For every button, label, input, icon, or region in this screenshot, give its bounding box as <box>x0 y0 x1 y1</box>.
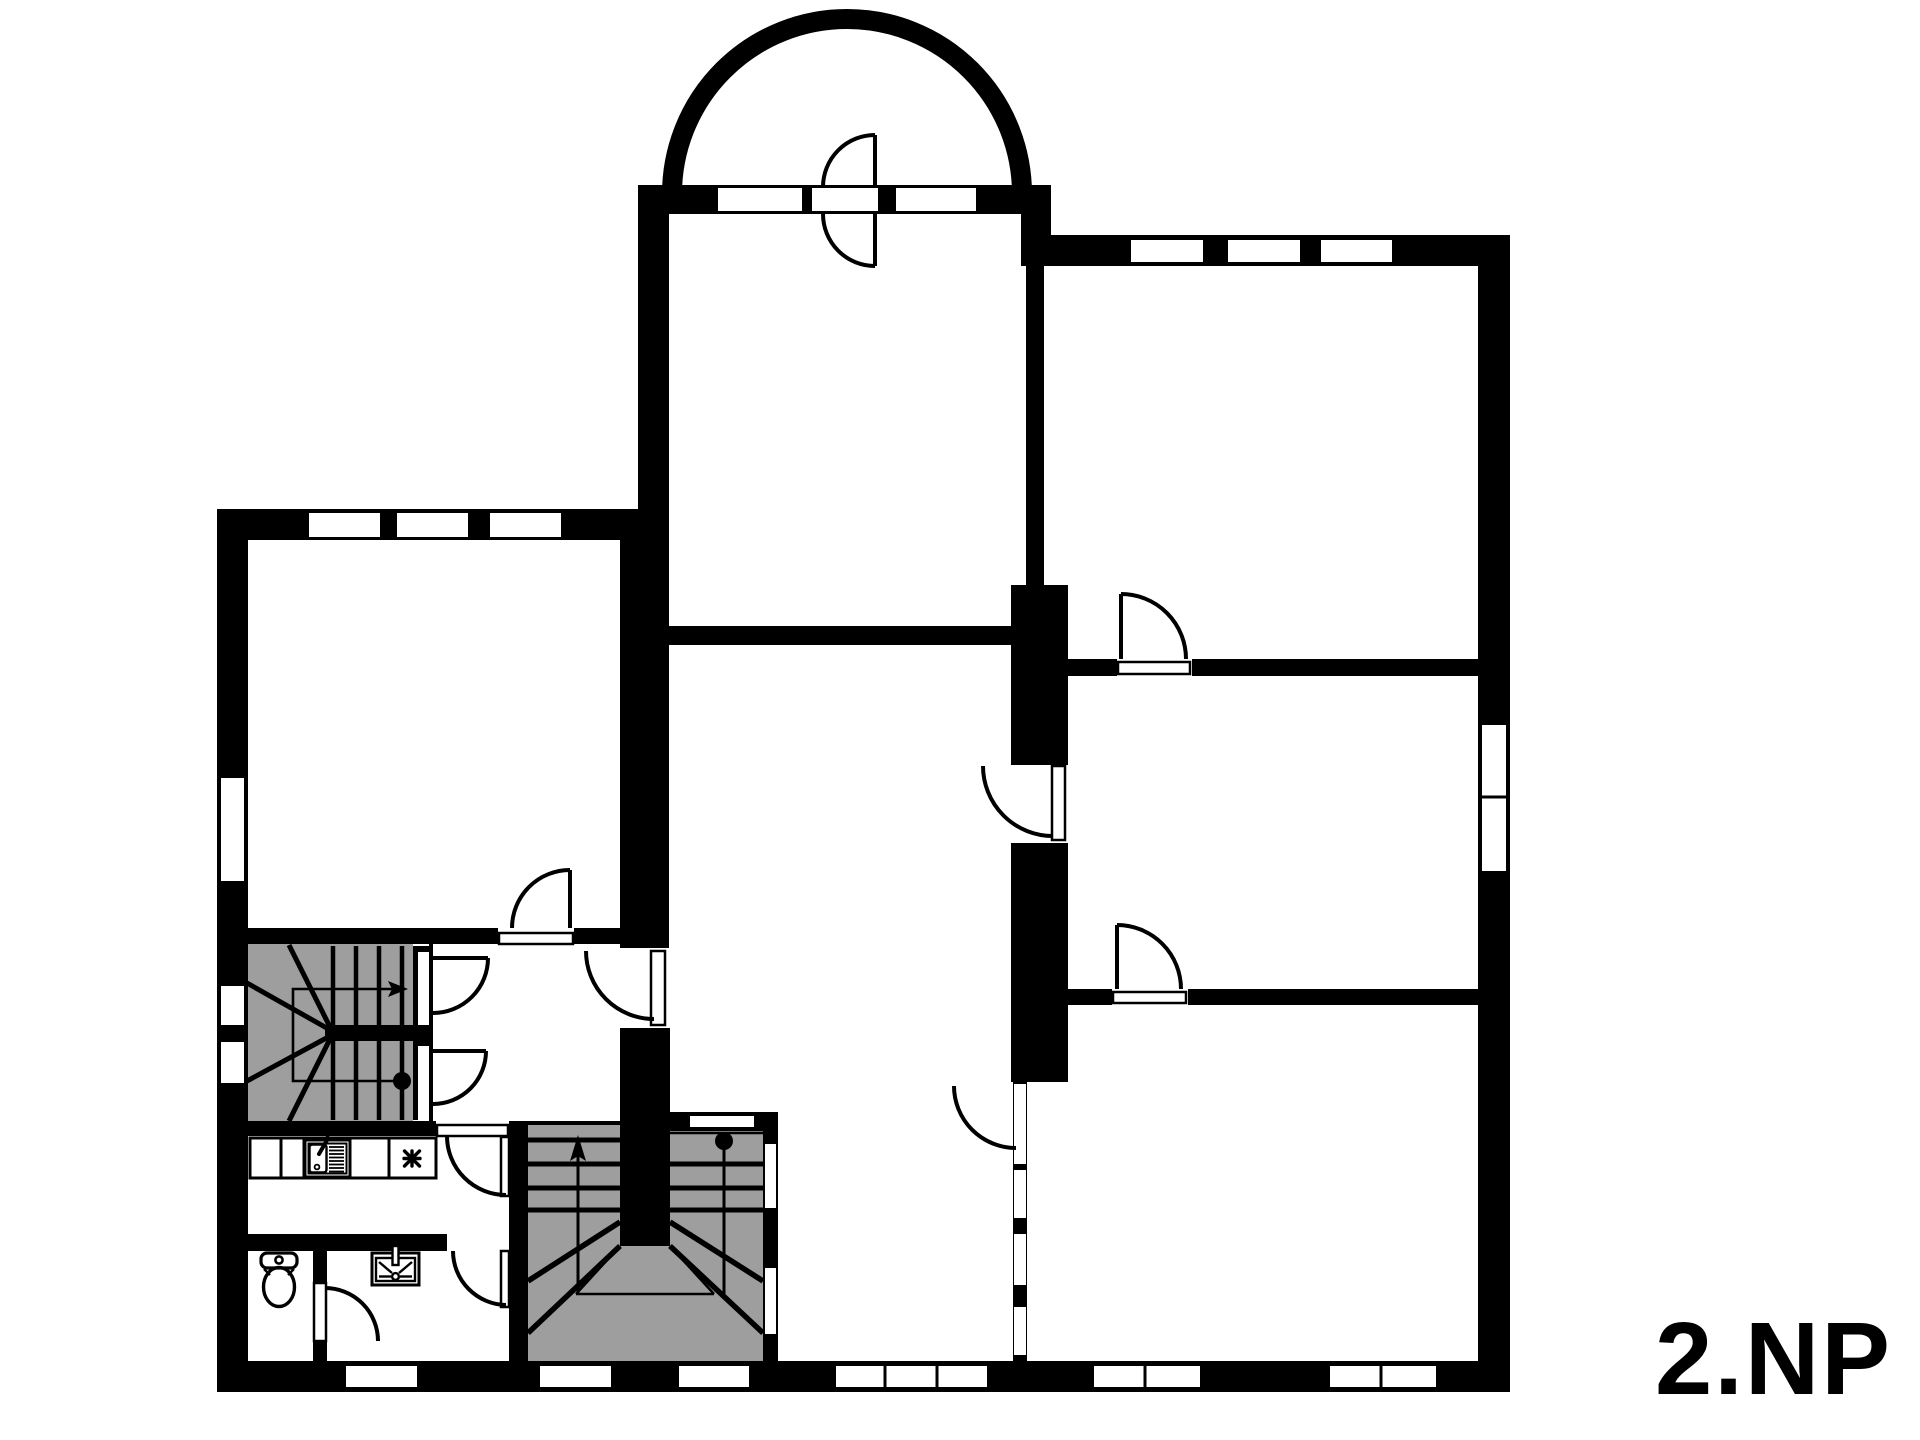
svg-text:2.NP: 2.NP <box>1655 1301 1892 1416</box>
